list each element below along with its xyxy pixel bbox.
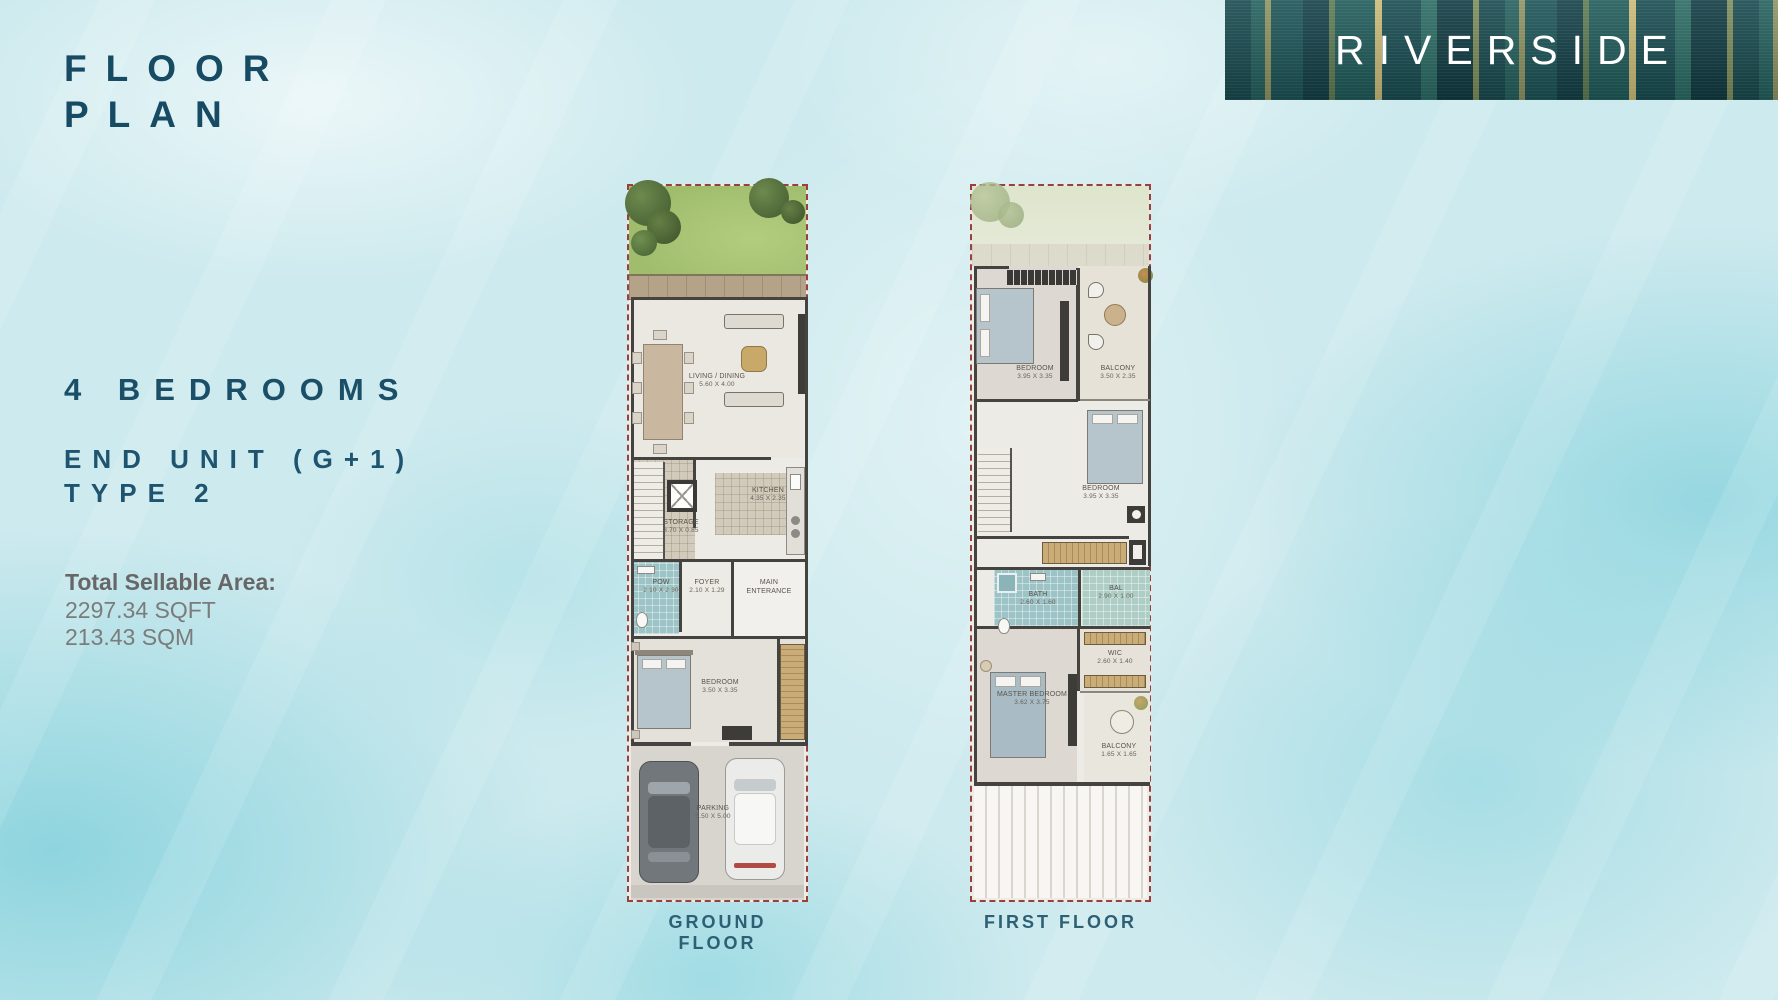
- toilet: [636, 612, 648, 628]
- tv-unit: [1068, 674, 1077, 746]
- ground-floor-plan: LIVING / DINING 5.60 X 4.00 STORAGE 3.70…: [627, 184, 808, 902]
- sellable-area-label: Total Sellable Area:: [65, 569, 276, 596]
- tree-icon: [781, 200, 805, 224]
- room-label-balcony2: BALCONY 1.65 X 1.65: [1092, 742, 1146, 760]
- first-floor-plan: BEDROOM 3.95 X 3.35 BALCONY 3.50 X 2.35 …: [970, 184, 1151, 902]
- stove-burner: [791, 529, 800, 538]
- room-label-bedroom1: BEDROOM 3.95 X 3.35: [1004, 364, 1066, 382]
- dining-chair: [653, 330, 667, 340]
- unit-type-line1: END UNIT (G+1): [64, 444, 415, 475]
- wic-wardrobe: [1084, 675, 1146, 688]
- brand-name: RIVERSIDE: [1225, 0, 1778, 100]
- open-roof-pergola: [974, 786, 1147, 898]
- balcony-chair: [1110, 710, 1134, 734]
- room-label-master-bedroom: MASTER BEDROOM 3.62 X 3.75: [994, 690, 1070, 708]
- dining-chair: [632, 352, 642, 364]
- room-label-storage: STORAGE 3.70 X 0.85: [651, 518, 711, 536]
- staircase: [633, 462, 665, 560]
- area-sqm: 213.43 SQM: [65, 624, 194, 651]
- dining-table: [643, 344, 683, 440]
- sink: [637, 566, 655, 574]
- bedrooms-heading: 4 BEDROOMS: [64, 372, 412, 408]
- room-label-wic: WIC 2.60 X 1.40: [1086, 649, 1144, 667]
- first-floor-caption: FIRST FLOOR: [970, 912, 1151, 933]
- dining-chair: [653, 444, 667, 454]
- title-line2: PLAN: [64, 94, 241, 135]
- room-label-powder: POW 2.10 X 2.30: [641, 578, 681, 596]
- area-sqft: 2297.34 SQFT: [65, 597, 216, 624]
- room-label-bath: BATH 2.60 X 1.60: [1012, 590, 1064, 608]
- kitchen-floor: [715, 473, 787, 535]
- ground-floor-caption: GROUND FLOOR: [627, 912, 808, 954]
- title-line1: FLOOR: [64, 48, 288, 89]
- staircase: [978, 448, 1012, 532]
- car-dark: [639, 761, 699, 883]
- floor-plan-page: FLOORPLAN 4 BEDROOMS END UNIT (G+1) TYPE…: [0, 0, 1778, 1000]
- wardrobe: [1042, 542, 1127, 564]
- coffee-table: [741, 346, 767, 372]
- dining-chair: [684, 352, 694, 364]
- page-title: FLOORPLAN: [64, 46, 288, 138]
- unit-type-line2: TYPE 2: [64, 478, 220, 509]
- room-label-bal: BAL 2.90 X 1.00: [1088, 584, 1144, 602]
- sofa: [724, 314, 784, 329]
- laundry-unit: [1127, 506, 1145, 523]
- dresser: [722, 726, 752, 740]
- deck-faded: [972, 244, 1149, 266]
- shaft-box: [667, 480, 697, 512]
- room-label-foyer: FOYER 2.10 X 1.29: [681, 578, 733, 596]
- wardrobe: [780, 644, 805, 740]
- toilet: [998, 618, 1010, 634]
- sofa: [724, 392, 784, 407]
- wic-wardrobe: [1084, 632, 1146, 645]
- room-label-kitchen: KITCHEN 4.35 X 2.35: [733, 486, 803, 504]
- dining-chair: [632, 412, 642, 424]
- dining-chair: [632, 382, 642, 394]
- room-label-main-entrance: MAIN ENTERANCE: [737, 578, 801, 596]
- balcony-chair: [1088, 334, 1104, 350]
- balcony-table: [1104, 304, 1126, 326]
- nightstand: [631, 730, 640, 739]
- entrance-floor: [734, 562, 805, 636]
- room-label-parking: PARKING 5.50 X 5.00: [681, 804, 745, 822]
- tree-icon: [998, 202, 1024, 228]
- tree-icon: [631, 230, 657, 256]
- room-label-bedroom2: BEDROOM 3.95 X 3.35: [1070, 484, 1132, 502]
- sink: [1030, 573, 1046, 581]
- nightstand: [631, 642, 640, 651]
- closet-box: [1129, 540, 1146, 565]
- room-label-living-dining: LIVING / DINING 5.60 X 4.00: [685, 372, 749, 390]
- room-label-bedroom: BEDROOM 3.50 X 3.35: [689, 678, 751, 696]
- bed: [990, 672, 1046, 758]
- bed: [1087, 410, 1143, 484]
- dining-chair: [684, 412, 694, 424]
- bed: [637, 655, 691, 729]
- wardrobe-rail: [1007, 270, 1077, 285]
- bed: [976, 288, 1034, 364]
- plant-icon: [1134, 696, 1148, 710]
- room-label-balcony1: BALCONY 3.50 X 2.35: [1088, 364, 1148, 382]
- balcony-chair: [1088, 282, 1104, 298]
- side-table: [980, 660, 992, 672]
- stove-burner: [791, 516, 800, 525]
- brand-banner: RIVERSIDE: [1225, 0, 1778, 100]
- driveway: [631, 885, 804, 898]
